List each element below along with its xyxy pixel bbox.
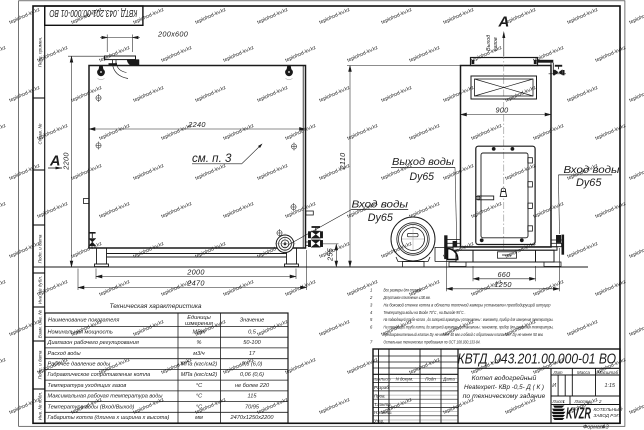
svg-text:°С: °С bbox=[196, 394, 203, 400]
svg-text:Dy65: Dy65 bbox=[576, 177, 602, 189]
svg-text:KVZR: KVZR bbox=[566, 406, 591, 423]
svg-text:1:15: 1:15 bbox=[605, 383, 616, 389]
svg-text:Листов: Листов bbox=[574, 399, 592, 404]
svg-text:Масса: Масса bbox=[577, 370, 591, 375]
svg-text:не более 220: не более 220 bbox=[235, 383, 270, 389]
svg-text:Подп: Подп bbox=[425, 377, 436, 382]
svg-text:Инв. № подл.: Инв. № подл. bbox=[38, 392, 43, 421]
svg-text:70/95: 70/95 bbox=[245, 404, 260, 410]
svg-text:Dy65: Dy65 bbox=[410, 171, 435, 183]
svg-text:Heatexpert- КВр -0,5- Д ( К ): Heatexpert- КВр -0,5- Д ( К ) bbox=[464, 384, 544, 391]
svg-text:°С: °С bbox=[196, 404, 203, 410]
svg-text:Техническая характеристика: Техническая характеристика bbox=[109, 303, 201, 310]
svg-text:A: A bbox=[498, 14, 510, 31]
svg-text:Максимальная рабочая температу: Максимальная рабочая температура воды bbox=[48, 394, 163, 400]
svg-text:1: 1 bbox=[370, 288, 372, 293]
svg-text:измерения: измерения bbox=[185, 321, 213, 327]
svg-text:255: 255 bbox=[326, 247, 335, 262]
svg-text:Н.контр.: Н.контр. bbox=[374, 410, 393, 415]
svg-text:2110: 2110 bbox=[338, 153, 347, 171]
svg-text:Лит: Лит bbox=[552, 370, 562, 375]
svg-text:Допустимое отклонение ±100 мм: Допустимое отклонение ±100 мм. bbox=[383, 295, 431, 300]
svg-text:%: % bbox=[197, 340, 202, 346]
svg-text:°С: °С bbox=[196, 383, 203, 389]
svg-text:Котел водогрейный: Котел водогрейный bbox=[472, 374, 537, 382]
svg-text:2470х1250х2200: 2470х1250х2200 bbox=[230, 415, 275, 421]
svg-text:1250: 1250 bbox=[494, 280, 511, 289]
svg-text:по техническому задание: по техническому задание bbox=[463, 392, 546, 400]
svg-text:м3/ч: м3/ч bbox=[193, 351, 204, 357]
svg-text:Наименование показателя: Наименование показателя bbox=[48, 318, 119, 324]
svg-text:Гидравлическое сопротивление к: Гидравлическое сопротивление котла bbox=[48, 372, 151, 378]
svg-text:Т.контр.: Т.контр. bbox=[374, 402, 392, 407]
svg-text:900: 900 bbox=[495, 106, 508, 115]
svg-text:Вход воды: Вход воды bbox=[352, 200, 409, 211]
svg-text:ЗАВОД РЭП: ЗАВОД РЭП bbox=[594, 413, 621, 418]
svg-text:Вход воды: Вход воды bbox=[564, 165, 620, 176]
svg-text:предохранительный клапан Dу н: предохранительный клапан Dу не менее 40 … bbox=[384, 332, 544, 337]
svg-text:КВТД .043.201.00.000-01 ВО: КВТД .043.201.00.000-01 ВО bbox=[458, 351, 617, 368]
svg-text:Выход воды: Выход воды bbox=[392, 157, 454, 168]
svg-text:КВТД .043.201.00.000-01 ВО: КВТД .043.201.00.000-01 ВО bbox=[49, 7, 137, 18]
svg-text:Утв.: Утв. bbox=[374, 418, 384, 423]
svg-text:Остальные технические требован: Остальные технические требования по ОСТ … bbox=[384, 339, 481, 344]
svg-text:Пров.: Пров. bbox=[374, 394, 386, 399]
svg-text:0,06 (0,6): 0,06 (0,6) bbox=[240, 372, 264, 378]
svg-text:Габариты котла (длинна х ширин: Габариты котла (длинна х ширина х высота… bbox=[48, 415, 170, 421]
svg-text:На подводящей трубе котла ,: На подводящей трубе котла , до запорной … bbox=[384, 317, 554, 322]
svg-text:Взам. инв. №: Взам. инв. № bbox=[38, 310, 43, 338]
svg-text:Разраб.: Разраб. bbox=[374, 385, 390, 390]
svg-text:Масштаб: Масштаб bbox=[598, 370, 619, 375]
svg-text:A: A bbox=[49, 154, 60, 170]
svg-text:Температура воды (Вход/Выход): Температура воды (Вход/Выход) bbox=[48, 404, 135, 410]
svg-text:Температура воды на Входе 70°: Температура воды на Входе 70°С , на Выхо… bbox=[384, 310, 466, 315]
svg-text:Лист: Лист bbox=[379, 377, 391, 382]
svg-text:115: 115 bbox=[248, 394, 258, 400]
svg-text:На боковой стенке котла в обла: На боковой стенке котла в области топочн… bbox=[384, 302, 552, 307]
svg-text:0,5: 0,5 bbox=[248, 329, 257, 335]
svg-text:Диапазон рабочего регулировани: Диапазон рабочего регулирования bbox=[47, 340, 139, 346]
svg-text:Справ. №: Справ. № bbox=[38, 124, 43, 145]
svg-text:2470: 2470 bbox=[186, 279, 204, 288]
svg-text:660: 660 bbox=[497, 270, 510, 279]
svg-text:17: 17 bbox=[249, 351, 256, 357]
svg-text:газов: газов bbox=[493, 37, 499, 51]
svg-text:Подп. и дата: Подп. и дата bbox=[38, 350, 43, 379]
svg-text:А3: А3 bbox=[601, 424, 609, 430]
svg-text:Инв. № дубл.: Инв. № дубл. bbox=[38, 276, 43, 304]
svg-text:Перв. примен.: Перв. примен. bbox=[38, 37, 43, 68]
svg-text:КОТЕЛЬНЫЙ: КОТЕЛЬНЫЙ bbox=[594, 405, 624, 412]
svg-text:см. п. 3: см. п. 3 bbox=[192, 152, 232, 165]
svg-text:2240: 2240 bbox=[187, 120, 205, 129]
svg-text:И: И bbox=[552, 383, 556, 389]
svg-text:Все размеры для справок: Все размеры для справок bbox=[384, 288, 423, 293]
svg-text:Дата: Дата bbox=[442, 377, 455, 382]
svg-text:МПа (кгс/см2): МПа (кгс/см2) bbox=[181, 362, 218, 368]
svg-text:Значение: Значение bbox=[240, 318, 265, 324]
svg-text:Номинальная мощность: Номинальная мощность bbox=[48, 329, 113, 335]
svg-text:50-100: 50-100 bbox=[243, 340, 261, 346]
svg-text:N докум.: N докум. bbox=[396, 377, 414, 382]
svg-text:Подп. и дата: Подп. и дата bbox=[38, 234, 43, 263]
svg-text:2: 2 bbox=[598, 399, 602, 404]
svg-text:Выход: Выход bbox=[486, 35, 492, 51]
svg-text:2200: 2200 bbox=[62, 152, 71, 170]
svg-text:Dy65: Dy65 bbox=[368, 212, 394, 224]
svg-text:Расход воды: Расход воды bbox=[48, 351, 81, 357]
svg-text:На отводящей трубе котла, до: На отводящей трубе котла, до запорной ар… bbox=[384, 325, 554, 330]
svg-text:0,6 (6,0): 0,6 (6,0) bbox=[242, 362, 263, 368]
svg-text:Температура уходящих газов: Температура уходящих газов bbox=[48, 383, 127, 389]
svg-text:2000: 2000 bbox=[186, 268, 204, 277]
svg-text:Рабочее давление воды: Рабочее давление воды bbox=[48, 362, 111, 368]
svg-text:200х600: 200х600 bbox=[157, 30, 188, 39]
svg-text:МВт: МВт bbox=[192, 329, 205, 335]
svg-text:МПа (кгс/см2): МПа (кгс/см2) bbox=[181, 372, 218, 378]
svg-text:мм: мм bbox=[195, 415, 203, 421]
